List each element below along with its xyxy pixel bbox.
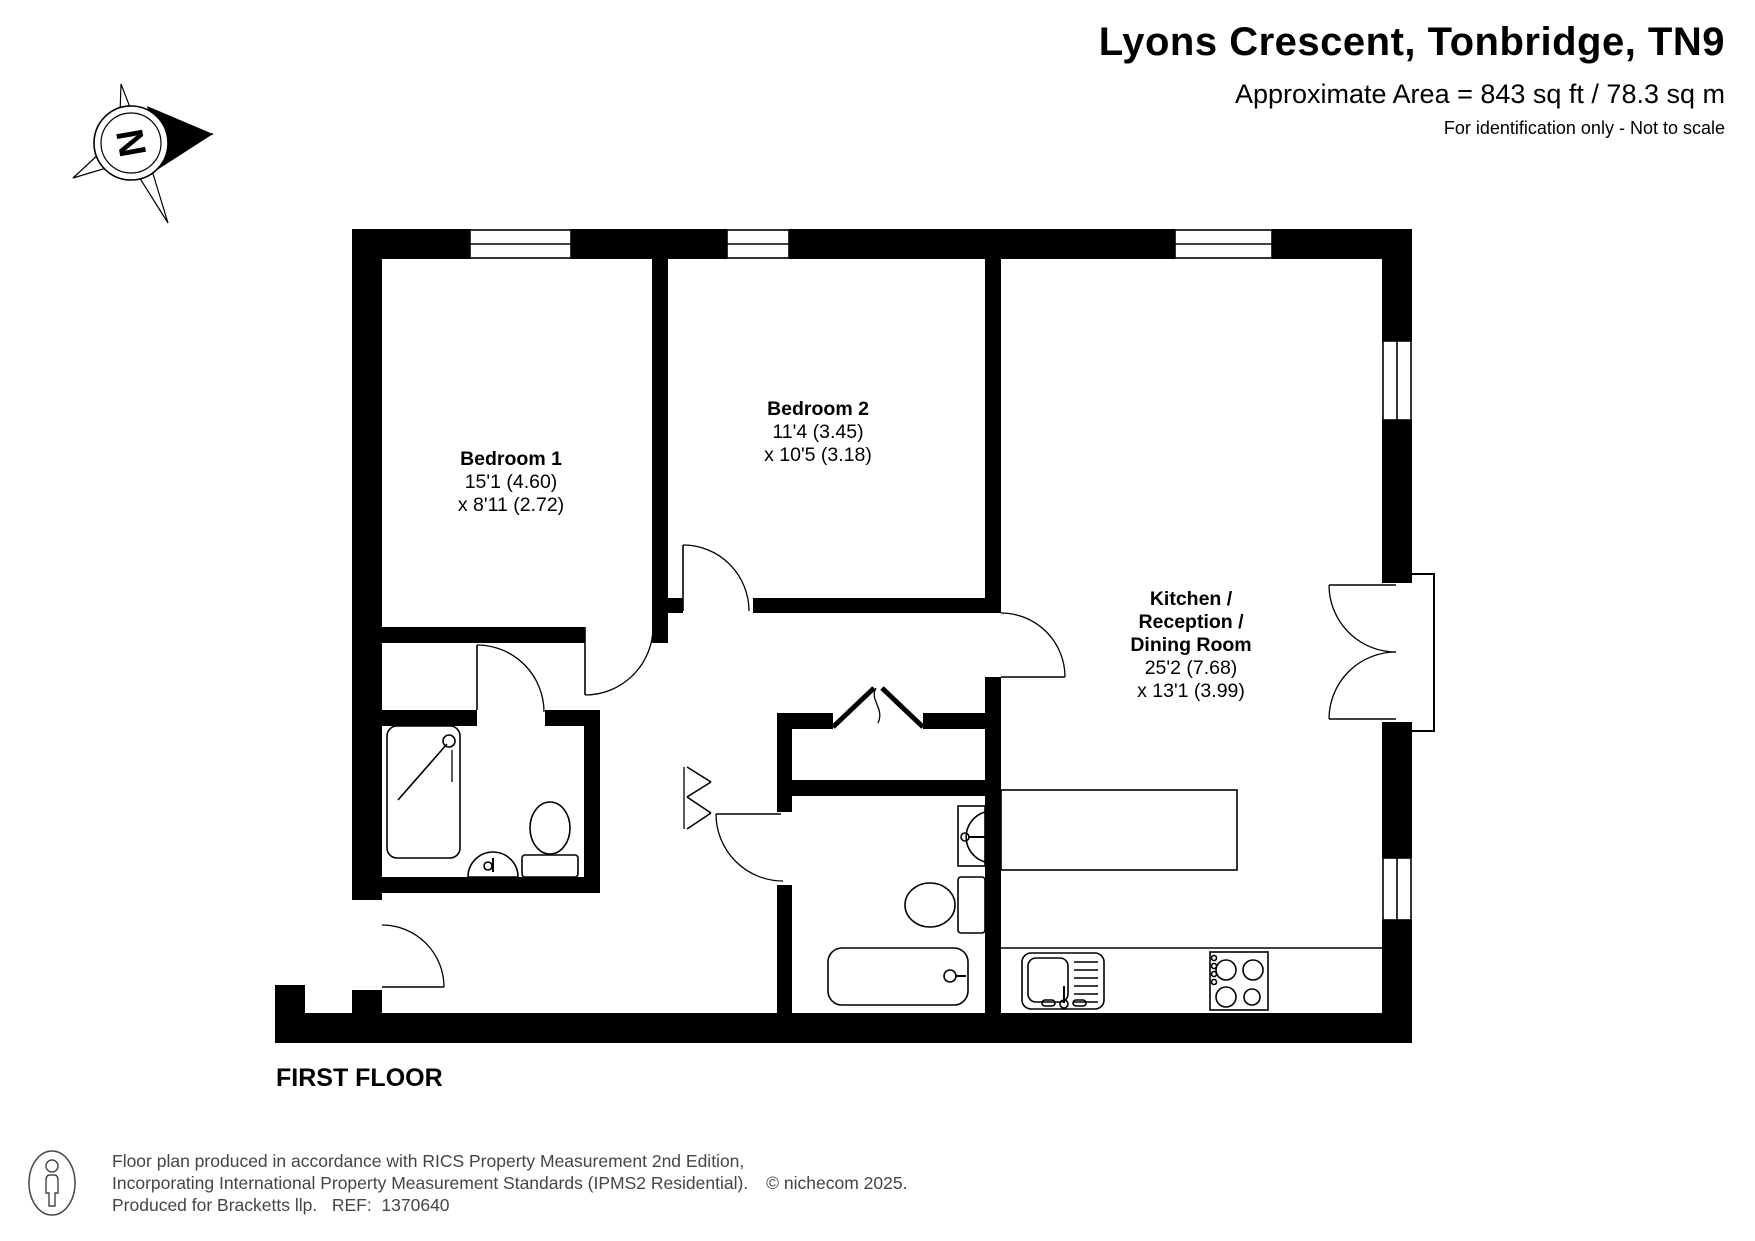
bedroom1-door <box>585 627 653 695</box>
bathroom-door <box>716 814 783 881</box>
ensuite-toilet-icon <box>522 802 578 877</box>
room-label-bedroom2: Bedroom 2 11'4 (3.45) x 10'5 (3.18) <box>698 398 938 467</box>
window-kitchen-top <box>1175 230 1272 258</box>
corridor-cupboard-doors <box>684 767 711 829</box>
ensuite-door <box>477 645 544 712</box>
room-dim: 25'2 (7.68) <box>1071 657 1311 680</box>
window-kitchen-right-lower <box>1383 858 1411 920</box>
room-name: Bedroom 1 <box>391 448 631 471</box>
room-label-bedroom1: Bedroom 1 15'1 (4.60) x 8'11 (2.72) <box>391 448 631 517</box>
room-dim: 11'4 (3.45) <box>698 421 938 444</box>
footer-line2-text: Incorporating International Property Mea… <box>112 1173 748 1193</box>
room-dim: x 13'1 (3.99) <box>1071 680 1311 703</box>
footer-line3: Produced for Bracketts llp. REF: 1370640 <box>112 1194 907 1216</box>
ensuite-basin-icon <box>468 852 518 877</box>
kitchen-door <box>1001 613 1065 677</box>
footer-line2: Incorporating International Property Mea… <box>112 1172 907 1194</box>
room-dim: x 10'5 (3.18) <box>698 444 938 467</box>
floorplan-page: Lyons Crescent, Tonbridge, TN9 Approxima… <box>0 0 1755 1241</box>
room-name: Bedroom 2 <box>698 398 938 421</box>
cupboard-bifold-doors <box>833 688 923 727</box>
footer-disclaimer: Floor plan produced in accordance with R… <box>112 1150 907 1216</box>
windows <box>470 230 1411 920</box>
bath-icon <box>828 948 968 1005</box>
copyright: © nichecom 2025. <box>766 1173 907 1193</box>
compass-rose: N <box>73 84 213 223</box>
bedroom2-door <box>683 545 749 611</box>
room-name: Kitchen / <box>1071 588 1311 611</box>
shower-icon <box>387 726 460 858</box>
entrance-door <box>382 925 444 987</box>
person-icon <box>29 1151 75 1215</box>
floor-plan-svg: N <box>0 0 1755 1241</box>
bathroom-basin-icon <box>958 806 985 866</box>
room-dim: x 8'11 (2.72) <box>391 494 631 517</box>
kitchen-island <box>1001 790 1237 870</box>
window-bedroom1 <box>470 230 571 258</box>
room-label-kitchen: Kitchen / Reception / Dining Room 25'2 (… <box>1071 588 1311 703</box>
sink-icon <box>1022 953 1104 1009</box>
hob-icon <box>1210 952 1268 1010</box>
room-dim: 15'1 (4.60) <box>391 471 631 494</box>
room-name: Reception / <box>1071 611 1311 634</box>
window-bedroom2 <box>727 230 789 258</box>
bathroom-toilet-icon <box>905 877 985 933</box>
footer-line1: Floor plan produced in accordance with R… <box>112 1150 907 1172</box>
floor-label: FIRST FLOOR <box>276 1064 443 1093</box>
window-kitchen-right-upper <box>1383 341 1411 420</box>
french-doors <box>1329 574 1434 731</box>
room-name: Dining Room <box>1071 634 1311 657</box>
